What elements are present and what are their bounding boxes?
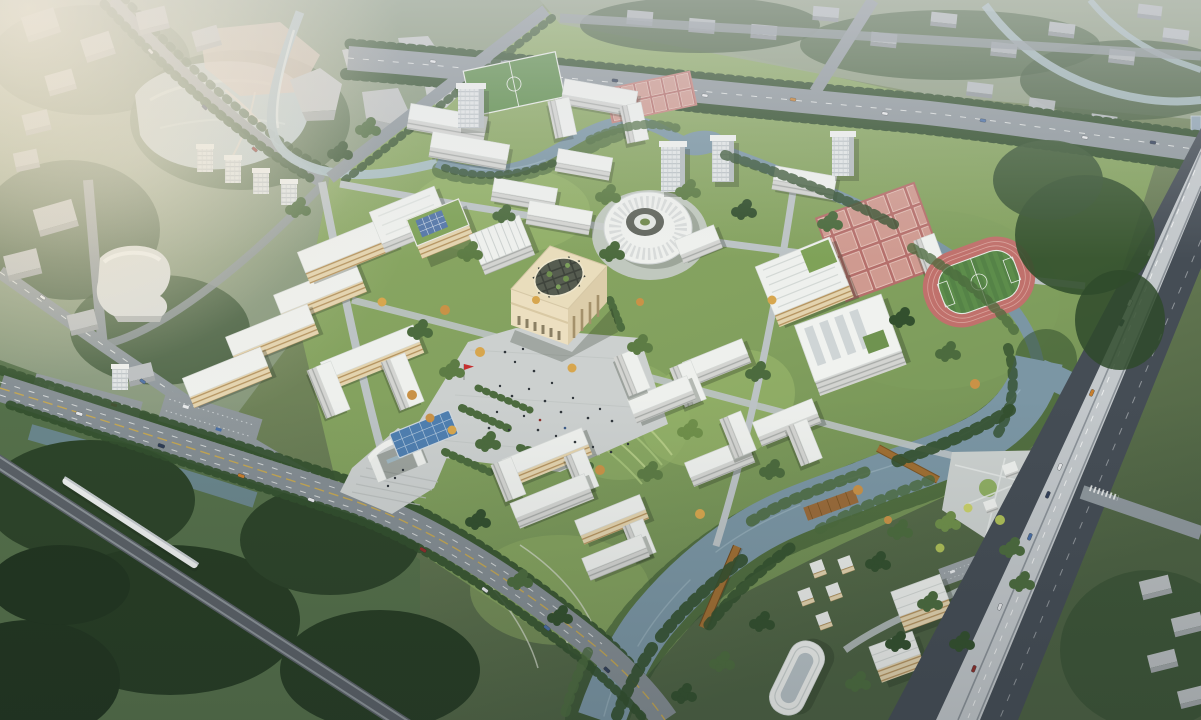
- aerial-campus-render: [0, 0, 1201, 720]
- circular-lawn: [979, 479, 997, 497]
- curved-cultural-building: [97, 246, 171, 322]
- scene: [0, 0, 1201, 720]
